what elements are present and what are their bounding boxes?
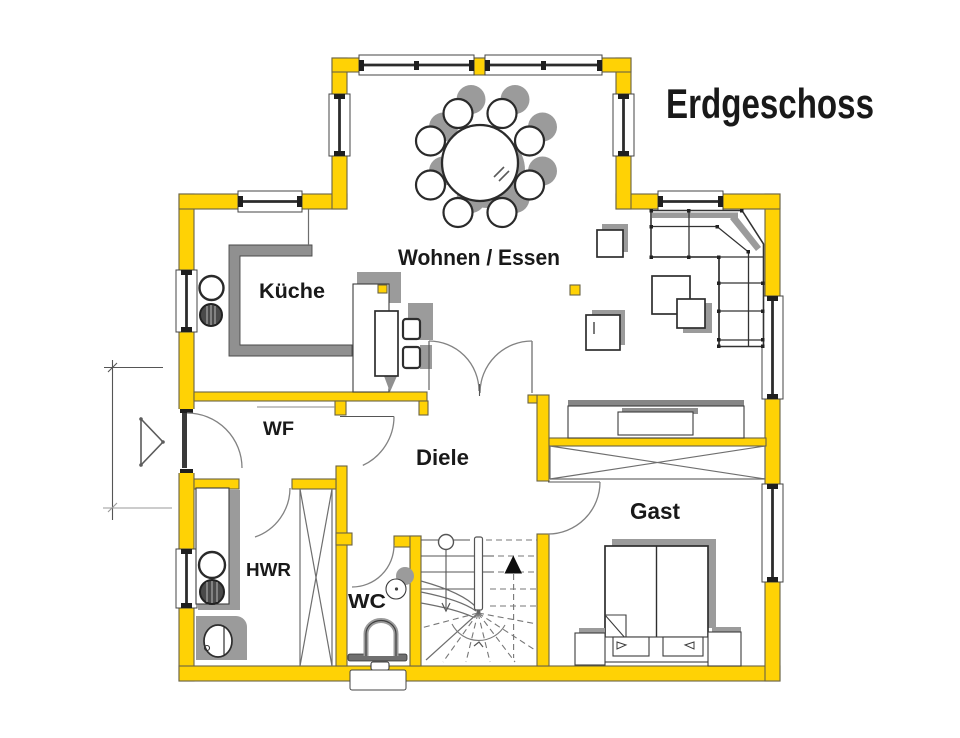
- svg-text:Diele: Diele: [416, 445, 469, 470]
- svg-text:Erdgeschoss: Erdgeschoss: [666, 80, 874, 127]
- svg-text:Küche: Küche: [259, 280, 325, 303]
- svg-text:WC: WC: [348, 591, 386, 613]
- svg-text:WF: WF: [263, 419, 294, 440]
- svg-text:Gast: Gast: [630, 498, 680, 524]
- svg-text:Wohnen / Essen: Wohnen / Essen: [398, 245, 560, 270]
- svg-text:HWR: HWR: [246, 559, 291, 580]
